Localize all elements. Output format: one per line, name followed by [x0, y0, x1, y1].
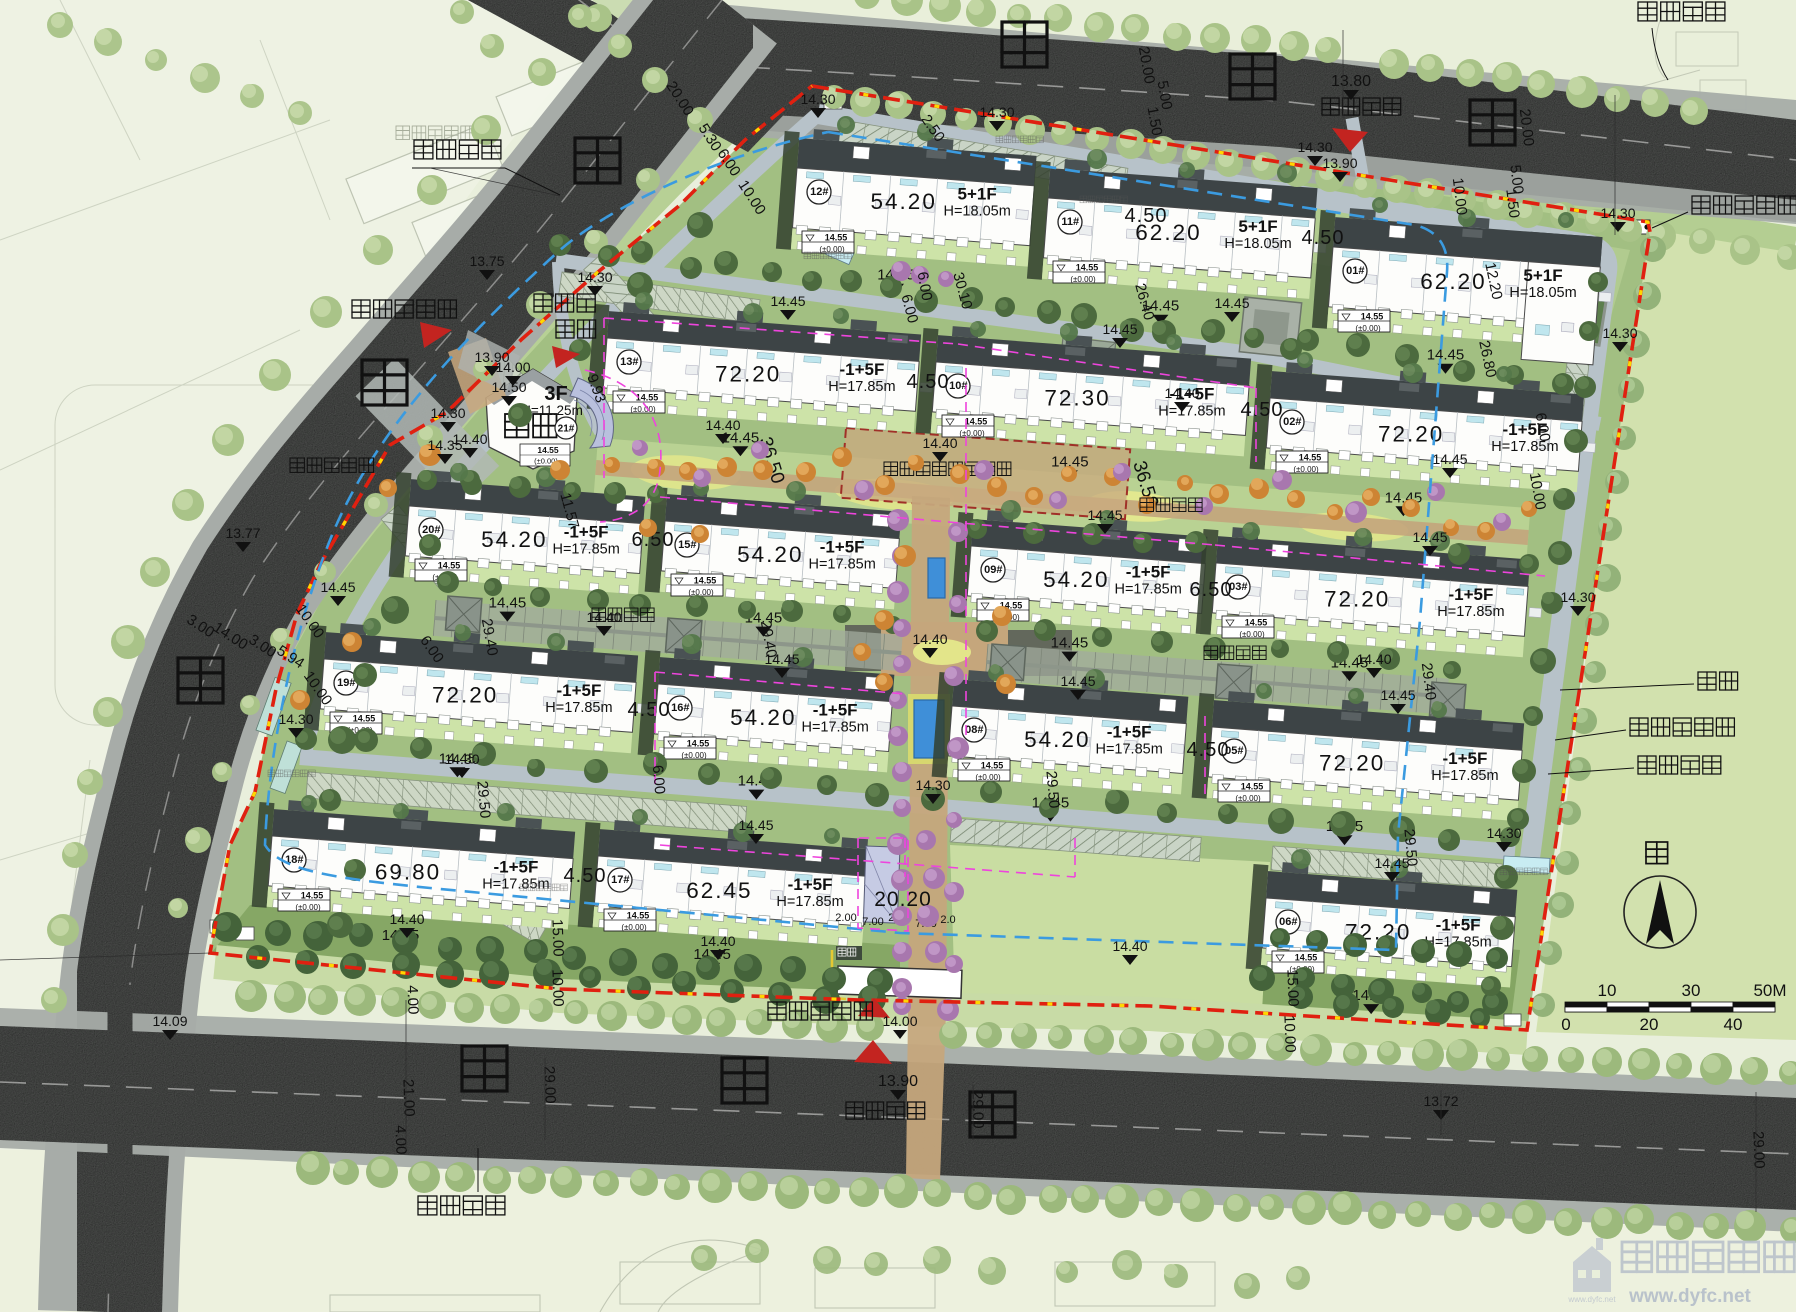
svg-text:4.50: 4.50	[907, 371, 950, 393]
svg-text:H=17.85m: H=17.85m	[1431, 768, 1498, 784]
svg-text:14.50: 14.50	[491, 379, 526, 395]
svg-text:29.50: 29.50	[1042, 770, 1062, 809]
svg-text:1.50: 1.50	[1502, 188, 1522, 219]
svg-text:17#: 17#	[611, 874, 629, 886]
svg-text:14.40: 14.40	[1164, 385, 1199, 401]
svg-text:10: 10	[1598, 981, 1617, 1000]
svg-text:H=17.85m: H=17.85m	[545, 700, 612, 716]
svg-text:54.20: 54.20	[730, 705, 796, 730]
svg-text:54.20: 54.20	[871, 189, 937, 214]
svg-text:14.55: 14.55	[636, 393, 659, 403]
svg-text:H=18.05m: H=18.05m	[1224, 236, 1291, 252]
svg-text:14.45: 14.45	[1102, 321, 1137, 337]
svg-text:H=17.85m: H=17.85m	[808, 556, 875, 572]
svg-text:(±0.00): (±0.00)	[975, 773, 1001, 782]
svg-text:13.75: 13.75	[469, 253, 504, 269]
svg-text:14.30: 14.30	[1560, 589, 1595, 605]
svg-text:(±0.00): (±0.00)	[621, 923, 647, 932]
svg-text:10.00: 10.00	[1280, 1015, 1298, 1053]
svg-text:14.45: 14.45	[320, 579, 355, 595]
svg-text:13.80: 13.80	[1331, 73, 1371, 90]
svg-text:14.55: 14.55	[1295, 953, 1318, 963]
svg-text:-1+5F: -1+5F	[494, 857, 539, 876]
svg-text:21#: 21#	[558, 424, 575, 435]
svg-text:13.90: 13.90	[1322, 155, 1357, 171]
svg-text:H=18.05m: H=18.05m	[943, 204, 1010, 220]
svg-text:H=17.85m: H=17.85m	[1114, 581, 1181, 597]
svg-text:(±0.00): (±0.00)	[681, 751, 707, 760]
svg-text:14.55: 14.55	[687, 739, 710, 749]
svg-text:14.30: 14.30	[1486, 825, 1521, 841]
svg-text:14.00: 14.00	[495, 359, 530, 375]
svg-text:72.20: 72.20	[1324, 587, 1390, 612]
svg-text:H=17.85m: H=17.85m	[552, 541, 619, 557]
svg-text:14.45: 14.45	[1432, 451, 1467, 467]
svg-text:16#: 16#	[671, 702, 689, 714]
svg-text:06#: 06#	[1279, 916, 1297, 928]
svg-text:-1+5F: -1+5F	[1126, 562, 1171, 581]
svg-text:H=17.85m: H=17.85m	[828, 379, 895, 395]
svg-text:4.50: 4.50	[628, 699, 671, 721]
svg-text:14.30: 14.30	[1602, 325, 1637, 341]
svg-text:6.00: 6.00	[649, 764, 668, 795]
svg-text:10#: 10#	[949, 380, 967, 392]
svg-text:14.45: 14.45	[1051, 635, 1089, 652]
svg-text:www.dyfc.net: www.dyfc.net	[1567, 1295, 1616, 1304]
svg-text:13.90: 13.90	[878, 1073, 918, 1090]
svg-text:12#: 12#	[810, 186, 828, 198]
svg-text:14.45: 14.45	[770, 293, 805, 309]
svg-text:29.00: 29.00	[1749, 1131, 1767, 1169]
svg-text:5+1F: 5+1F	[1523, 266, 1562, 285]
svg-text:(±0.00): (±0.00)	[1239, 630, 1265, 639]
svg-text:14.45: 14.45	[1380, 687, 1415, 703]
svg-text:H=17.85m: H=17.85m	[1437, 604, 1504, 620]
svg-text:3F: 3F	[544, 383, 567, 405]
svg-text:62.45: 62.45	[686, 878, 752, 903]
svg-text:14.55: 14.55	[537, 445, 559, 455]
svg-text:54.20: 54.20	[481, 527, 547, 552]
svg-text:14.40: 14.40	[705, 417, 740, 433]
svg-text:4.50: 4.50	[1187, 739, 1230, 761]
svg-text:72.20: 72.20	[1319, 751, 1385, 776]
svg-text:50M: 50M	[1753, 981, 1786, 1000]
svg-text:14.45: 14.45	[1214, 295, 1249, 311]
svg-text:14.30: 14.30	[278, 711, 313, 727]
svg-text:14.40: 14.40	[389, 911, 424, 927]
svg-text:21.00: 21.00	[399, 1079, 417, 1117]
svg-text:5+1F: 5+1F	[958, 185, 997, 204]
svg-text:H=17.85m: H=17.85m	[801, 719, 868, 735]
svg-text:14.40: 14.40	[1356, 651, 1391, 667]
svg-text:0: 0	[1561, 1015, 1570, 1034]
svg-text:15#: 15#	[678, 539, 696, 551]
svg-text:40: 40	[1724, 1015, 1743, 1034]
svg-text:14.45: 14.45	[1060, 673, 1095, 689]
svg-text:30: 30	[1682, 981, 1701, 1000]
svg-text:14.30: 14.30	[430, 405, 465, 421]
svg-text:H=18.05m: H=18.05m	[1509, 285, 1576, 301]
svg-text:(±0.00): (±0.00)	[959, 429, 985, 438]
svg-text:14.40: 14.40	[700, 933, 735, 949]
svg-text:(±0.00): (±0.00)	[1355, 324, 1381, 333]
svg-text:14.45: 14.45	[1412, 529, 1447, 545]
svg-text:H=17.85m: H=17.85m	[1095, 741, 1162, 757]
svg-text:14.55: 14.55	[694, 576, 717, 586]
svg-text:29.50: 29.50	[473, 780, 493, 819]
svg-text:14.40: 14.40	[586, 609, 621, 625]
svg-text:5+1F: 5+1F	[1238, 217, 1277, 236]
svg-text:19#: 19#	[337, 677, 355, 689]
svg-text:11#: 11#	[1061, 216, 1079, 228]
svg-text:14.55: 14.55	[1299, 453, 1322, 463]
svg-text:01#: 01#	[1346, 265, 1364, 277]
svg-text:14.55: 14.55	[981, 761, 1004, 771]
svg-text:4.50: 4.50	[1302, 227, 1345, 249]
svg-text:14.30: 14.30	[1600, 205, 1635, 221]
svg-text:-1+5F: -1+5F	[1448, 585, 1493, 604]
svg-text:-1+5F: -1+5F	[1436, 915, 1481, 934]
svg-text:29.00: 29.00	[968, 1091, 986, 1129]
svg-text:29.00: 29.00	[540, 1066, 558, 1104]
svg-text:14.45: 14.45	[738, 817, 773, 833]
svg-text:14.30: 14.30	[577, 269, 612, 285]
svg-text:72.30: 72.30	[1044, 386, 1110, 411]
svg-text:02#: 02#	[1283, 416, 1301, 428]
svg-text:-1+5F: -1+5F	[556, 681, 601, 700]
svg-text:14.55: 14.55	[438, 561, 461, 571]
svg-text:14.55: 14.55	[825, 233, 848, 243]
svg-text:13#: 13#	[620, 356, 638, 368]
svg-text:62.20: 62.20	[1420, 269, 1486, 294]
svg-text:H=17.85m: H=17.85m	[1158, 403, 1225, 419]
svg-text:14.55: 14.55	[1361, 312, 1384, 322]
svg-text:4.50: 4.50	[1241, 399, 1284, 421]
svg-text:2.00: 2.00	[835, 912, 856, 924]
svg-text:09#: 09#	[984, 564, 1002, 576]
svg-text:14.55: 14.55	[1076, 263, 1099, 273]
svg-text:-1+5F: -1+5F	[820, 537, 865, 556]
svg-text:7.00: 7.00	[862, 916, 883, 928]
svg-text:14.55: 14.55	[353, 714, 376, 724]
svg-text:54.20: 54.20	[1043, 567, 1109, 592]
svg-text:H=17.85m: H=17.85m	[776, 894, 843, 910]
svg-text:14.30: 14.30	[1297, 139, 1332, 155]
svg-text:20: 20	[1640, 1015, 1659, 1034]
svg-text:14.45: 14.45	[1087, 507, 1122, 523]
svg-text:08#: 08#	[965, 724, 983, 736]
svg-text:14.55: 14.55	[1245, 618, 1268, 628]
svg-text:(±0.00): (±0.00)	[295, 903, 321, 912]
svg-text:-1+5F: -1+5F	[1107, 722, 1152, 741]
svg-text:15.00: 15.00	[548, 919, 566, 957]
svg-text:4.00: 4.00	[391, 1125, 409, 1155]
svg-text:14.55: 14.55	[301, 891, 324, 901]
svg-text:14.30: 14.30	[915, 777, 950, 793]
svg-text:14.09: 14.09	[152, 1013, 187, 1029]
svg-text:54.20: 54.20	[1024, 727, 1090, 752]
svg-text:14.40: 14.40	[1112, 938, 1147, 954]
svg-text:(±0.00): (±0.00)	[1235, 794, 1261, 803]
svg-text:15.00: 15.00	[1283, 969, 1301, 1007]
svg-text:(±0.00): (±0.00)	[688, 588, 714, 597]
svg-text:-1+5F: -1+5F	[788, 875, 833, 894]
svg-text:2.0: 2.0	[940, 914, 955, 926]
svg-text:14.00: 14.00	[882, 1013, 917, 1029]
svg-text:29.50: 29.50	[1400, 828, 1420, 867]
svg-text:14.40: 14.40	[912, 631, 947, 647]
svg-text:6.50: 6.50	[1190, 579, 1233, 601]
svg-text:14.45: 14.45	[489, 595, 527, 612]
svg-text:14.40: 14.40	[452, 431, 487, 447]
svg-text:54.20: 54.20	[737, 542, 803, 567]
svg-text:14.30: 14.30	[444, 751, 479, 767]
svg-text:14.45: 14.45	[1427, 347, 1465, 364]
svg-text:(±0.00): (±0.00)	[1070, 275, 1096, 284]
svg-text:www.dyfc.net: www.dyfc.net	[1628, 1286, 1751, 1307]
svg-text:10.00: 10.00	[548, 969, 566, 1007]
svg-text:69.80: 69.80	[375, 859, 441, 884]
svg-text:4.50: 4.50	[1125, 205, 1168, 227]
svg-text:(±0.00): (±0.00)	[630, 405, 656, 414]
svg-text:14.55: 14.55	[627, 911, 650, 921]
svg-text:4.50: 4.50	[564, 865, 607, 887]
svg-text:14.30: 14.30	[800, 91, 835, 107]
svg-text:14.30: 14.30	[979, 104, 1014, 120]
svg-text:-1+5F: -1+5F	[813, 700, 858, 719]
svg-text:14.40: 14.40	[922, 435, 957, 451]
svg-text:-1+5F: -1+5F	[1442, 749, 1487, 768]
svg-text:72.20: 72.20	[432, 683, 498, 708]
svg-text:-1+5F: -1+5F	[839, 360, 884, 379]
svg-text:14.55: 14.55	[965, 417, 988, 427]
svg-text:14.55: 14.55	[1241, 782, 1264, 792]
svg-text:13.77: 13.77	[225, 525, 260, 541]
svg-text:H=17.85m: H=17.85m	[1491, 439, 1558, 455]
svg-text:72.20: 72.20	[715, 362, 781, 387]
svg-text:(±0.00): (±0.00)	[1293, 465, 1319, 474]
